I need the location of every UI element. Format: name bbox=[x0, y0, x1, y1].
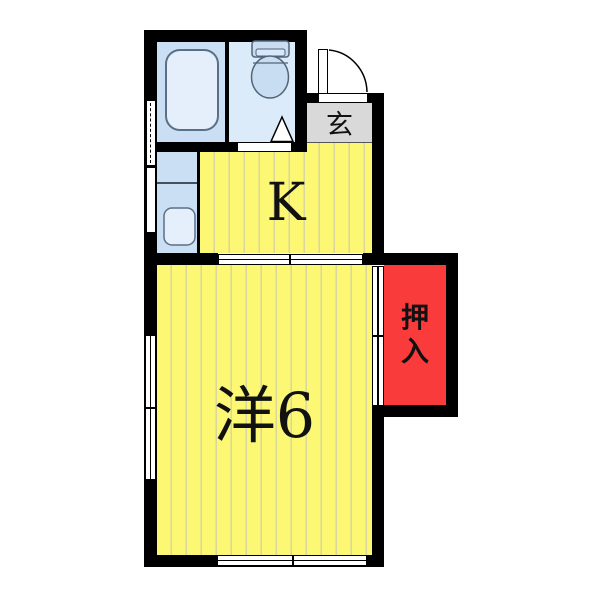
toilet-bowl-icon bbox=[252, 56, 289, 98]
floor-plan: K 玄 洋6 押 入 bbox=[0, 0, 600, 600]
toilet-lid-icon bbox=[256, 49, 285, 56]
toilet-door-triangle-icon bbox=[271, 117, 293, 142]
bathtub-icon bbox=[166, 50, 218, 130]
fixtures-layer bbox=[0, 0, 600, 600]
entrance-door-swing-arc bbox=[329, 50, 367, 92]
kitchen-sink-icon bbox=[164, 208, 195, 245]
